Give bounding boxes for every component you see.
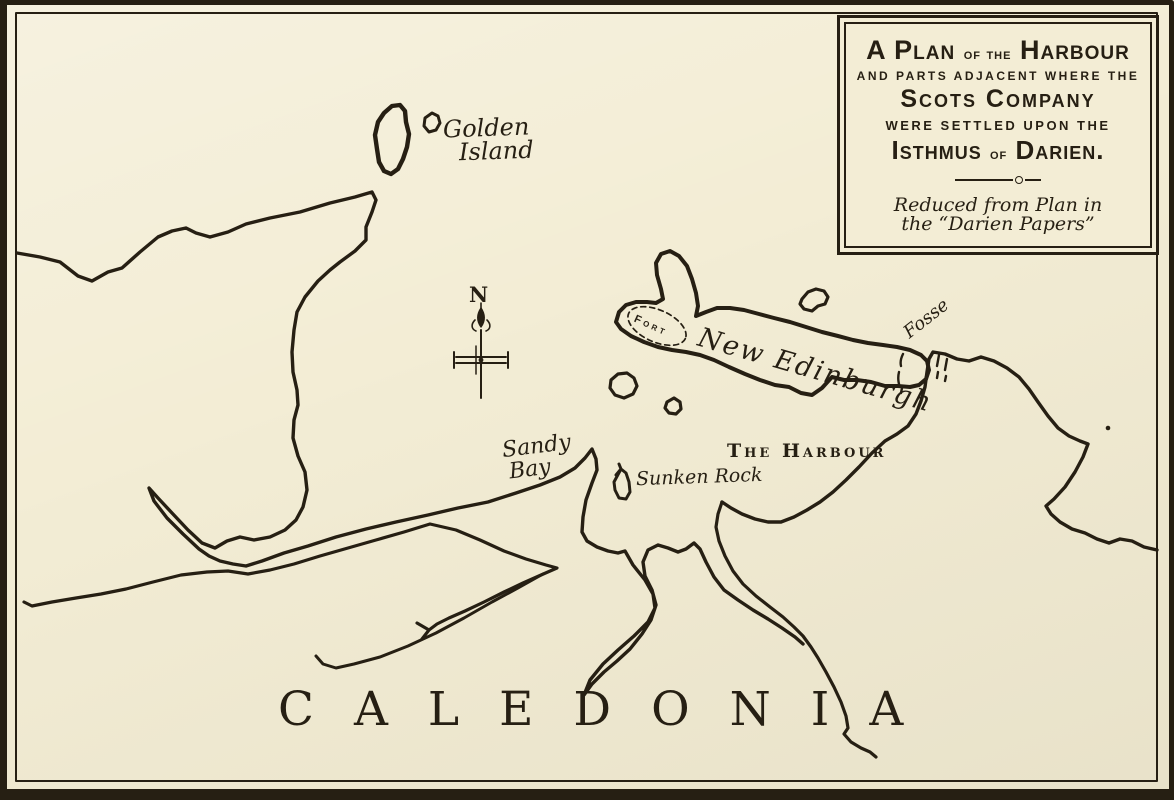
title-cartouche: A Plan of the Harbour AND PARTS ADJACENT… (837, 15, 1159, 255)
map-dot-mark (1106, 426, 1111, 431)
label-compass-north: N (469, 282, 488, 307)
title-cartouche-inner: A Plan of the Harbour AND PARTS ADJACENT… (844, 22, 1152, 248)
divider-bar-left (955, 179, 1013, 181)
islet-north-of-peninsula (800, 289, 828, 311)
title-line1-big-a: A Plan (866, 35, 955, 65)
label-sandy-bay-line2: Bay (508, 455, 552, 485)
title-line1-big-b: Harbour (1020, 35, 1130, 65)
divider-bar-right (1025, 179, 1041, 181)
title-line5-big-b: Darien. (1015, 135, 1104, 165)
cartouche-title-line2: AND PARTS ADJACENT WHERE THE (857, 69, 1140, 83)
divider-ring-icon (1015, 176, 1023, 184)
coastline-west-mainland (17, 192, 803, 695)
cartouche-title-line5: Isthmus of Darien. (892, 135, 1105, 166)
cartouche-credit: Reduced from Plan in the “Darien Papers” (894, 196, 1102, 234)
compass-rose (454, 303, 508, 398)
label-golden-island-line2: Island (459, 136, 535, 167)
cartouche-title-line1: A Plan of the Harbour (866, 36, 1130, 64)
sunken-rock-islet (614, 464, 630, 499)
label-caledonia: CALEDONIA (278, 682, 943, 737)
title-line5-big-a: Isthmus (892, 135, 982, 165)
darien-harbour-map: Golden Island New Edinburgh Fort Fosse T… (0, 0, 1174, 800)
cartouche-title-line4: WERE SETTLED UPON THE (885, 118, 1110, 133)
credit-line2: the “Darien Papers” (894, 215, 1102, 234)
compass-fleur-icon (478, 308, 485, 327)
label-sunken-rock: Sunken Rock (636, 464, 763, 490)
title-line1-small: of the (964, 46, 1012, 63)
cartouche-divider (955, 176, 1041, 184)
label-the-harbour: The Harbour (727, 440, 886, 462)
title-line5-small: of (990, 146, 1007, 163)
golden-island (375, 105, 440, 174)
harbour-islets (610, 373, 681, 414)
lagoon-lower-bank (24, 524, 557, 639)
cartouche-title-line3: Scots Company (900, 85, 1095, 114)
